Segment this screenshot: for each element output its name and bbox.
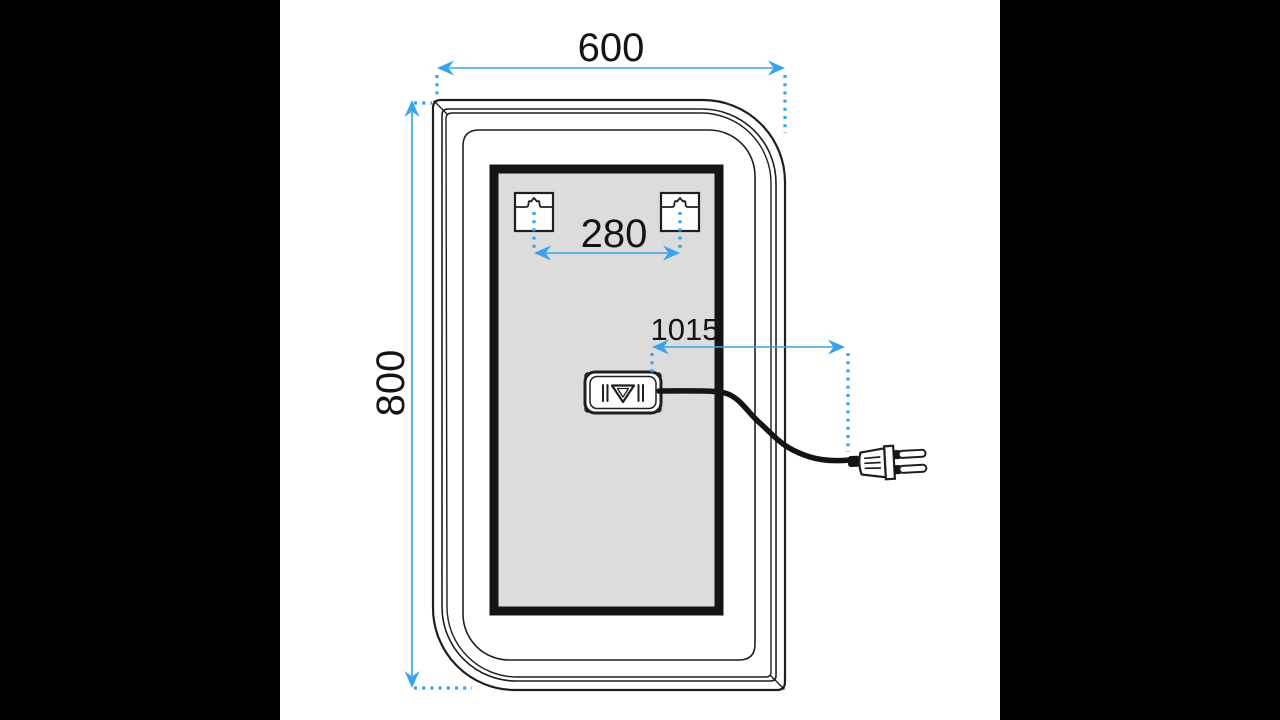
plug-collar: [884, 446, 895, 479]
dimension-height-label: 800: [369, 350, 413, 417]
power-plug: [847, 444, 927, 481]
mirror-dimension-diagram: 600 800 280 1015: [280, 0, 1000, 720]
screenshot-stage: 600 800 280 1015: [0, 0, 1280, 720]
driver-outer-case: [585, 372, 661, 413]
led-driver-box: [585, 372, 661, 413]
mirror-miter-bottom-right: [771, 676, 784, 689]
dimension-width: 600: [437, 26, 785, 133]
dimension-width-label: 600: [578, 26, 645, 70]
dimension-hook-spacing-label: 280: [581, 212, 648, 256]
dimension-cable-length-label: 1015: [651, 312, 720, 347]
plug-pin-top: [898, 450, 925, 458]
plug-pin-bottom: [899, 465, 926, 473]
letterbox-left: [0, 0, 280, 720]
dimension-height: 800: [369, 100, 472, 688]
letterbox-right: [1000, 0, 1280, 720]
mirror-miter-top-left: [434, 101, 447, 114]
